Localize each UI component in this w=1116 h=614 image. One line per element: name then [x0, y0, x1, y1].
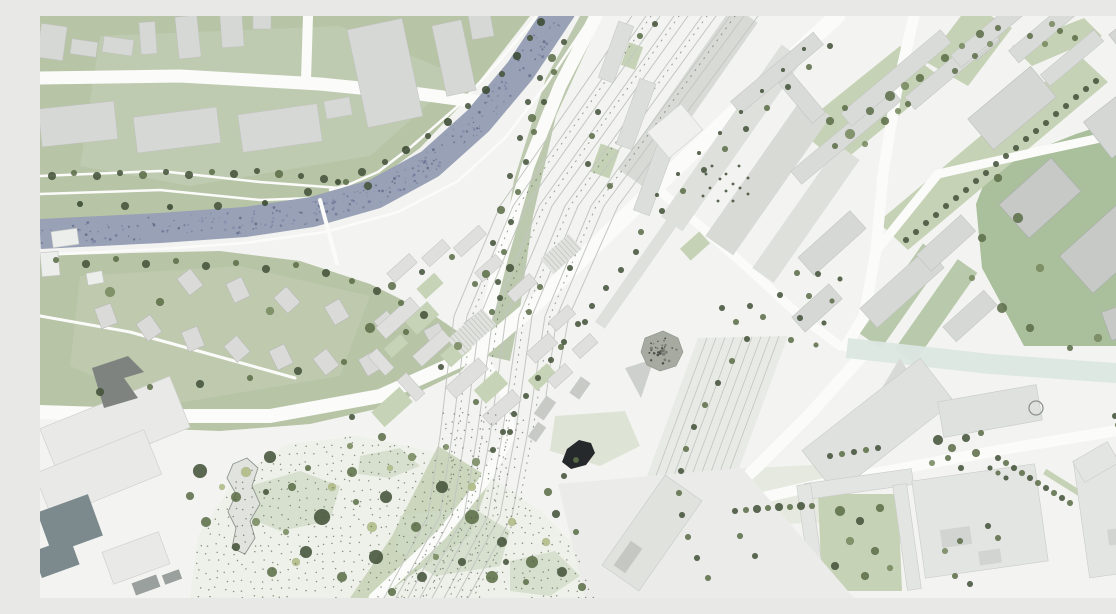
site-plan-canvas: [40, 16, 1116, 598]
site-plan-map: [40, 16, 1116, 598]
road-top-left-vertical: [306, 16, 308, 80]
